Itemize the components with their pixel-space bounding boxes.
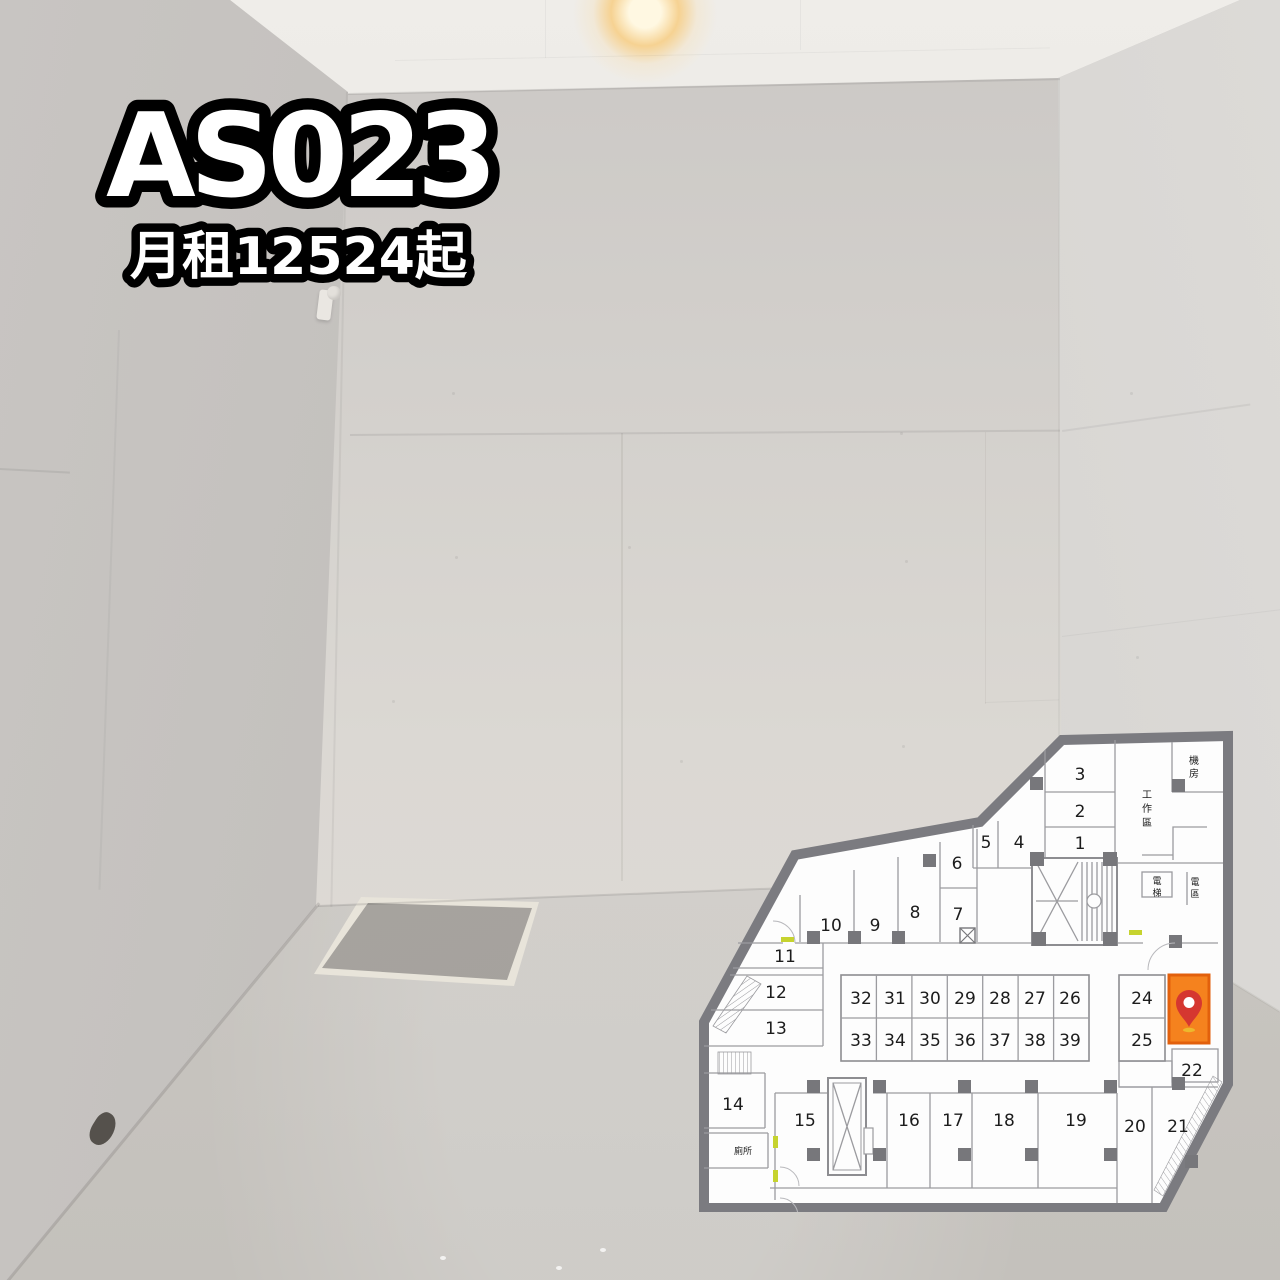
unit-24-label: 24 [1131, 989, 1153, 1009]
unit-32-label: 32 [850, 989, 872, 1009]
ceiling-tile-tick-1 [545, 0, 546, 58]
price-text: 月租12524起 [130, 227, 468, 287]
area-label: 工作區 [1142, 790, 1152, 829]
unit-28-label: 28 [989, 989, 1011, 1009]
elevator-shaft [828, 1078, 873, 1175]
unit-21-label: 21 [1167, 1117, 1189, 1137]
unit-18-label: 18 [993, 1111, 1015, 1131]
unit-38-label: 38 [1024, 1031, 1046, 1051]
unit-14-label: 14 [722, 1095, 744, 1115]
unit-30-label: 30 [919, 989, 941, 1009]
unit-12-label: 12 [765, 983, 787, 1003]
unit-25-label: 25 [1131, 1031, 1153, 1051]
unit-10-label: 10 [820, 916, 842, 936]
unit-16-label: 16 [898, 1111, 920, 1131]
unit-17-label: 17 [942, 1111, 964, 1131]
unit-8-label: 8 [910, 903, 921, 923]
unit-37-label: 37 [989, 1031, 1011, 1051]
unit-2-label: 2 [1075, 802, 1086, 822]
price-overlay: 月租12524起 [112, 216, 602, 316]
unit-33-label: 33 [850, 1031, 872, 1051]
area-label: 廁所 [734, 1145, 752, 1157]
unit-31-label: 31 [884, 989, 906, 1009]
backwall-seam-v2 [985, 432, 986, 704]
unit-26-label: 26 [1059, 989, 1081, 1009]
unit-20-label: 20 [1124, 1117, 1146, 1137]
unit-22-label: 22 [1181, 1061, 1203, 1081]
unit-36-label: 36 [954, 1031, 976, 1051]
unit-13-label: 13 [765, 1019, 787, 1039]
unit-15-label: 15 [794, 1111, 816, 1131]
unit-11-label: 11 [774, 947, 796, 967]
unit-3-label: 3 [1075, 765, 1086, 785]
unit-1-label: 1 [1075, 834, 1086, 854]
unit-7-label: 7 [953, 905, 964, 925]
unit-19-label: 19 [1065, 1111, 1087, 1131]
listing-photo: 1234567891011121314151617181920212224252… [0, 0, 1280, 1280]
unit-35-label: 35 [919, 1031, 941, 1051]
unit-34-label: 34 [884, 1031, 906, 1051]
unit-39-label: 39 [1059, 1031, 1081, 1051]
ceiling-tile-tick-2 [800, 0, 801, 50]
unit-4-label: 4 [1014, 833, 1025, 853]
floorplan-minimap: 1234567891011121314151617181920212224252… [695, 730, 1235, 1212]
unit-code-text: AS023 [106, 89, 491, 224]
unit-9-label: 9 [870, 916, 881, 936]
unit-6-label: 6 [952, 854, 963, 874]
unit-5-label: 5 [981, 833, 992, 853]
shaft-box-icon [960, 928, 975, 943]
unit-27-label: 27 [1024, 989, 1046, 1009]
unit-29-label: 29 [954, 989, 976, 1009]
stairs-small [718, 1052, 751, 1074]
backwall-seam-v1 [621, 433, 623, 881]
